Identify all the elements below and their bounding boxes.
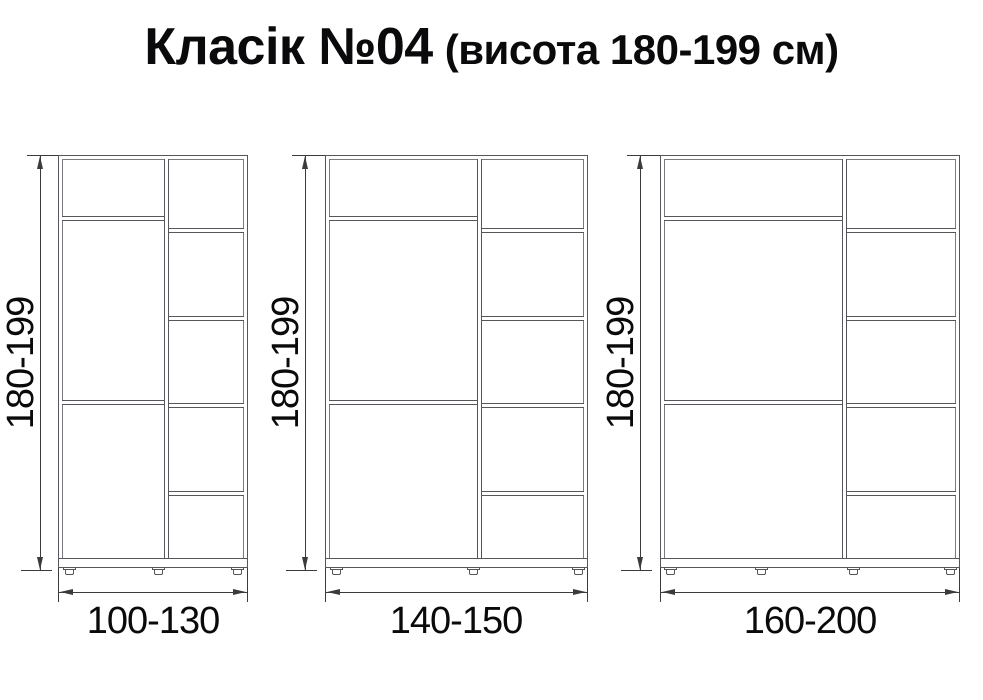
arrowhead-down: [637, 557, 643, 570]
shelf: [169, 228, 244, 233]
arrowhead-down: [37, 557, 43, 570]
shelf: [664, 216, 842, 221]
wardrobe-small: [58, 155, 248, 568]
shelf: [847, 491, 956, 496]
foot: [847, 567, 860, 575]
height-dimension-label: 180-199: [604, 288, 638, 438]
extension-line: [21, 570, 52, 571]
shelf: [482, 403, 584, 408]
shelf: [62, 400, 164, 405]
foot: [572, 567, 585, 575]
shelf: [169, 316, 244, 321]
foot: [944, 567, 957, 575]
extension-line: [621, 570, 652, 571]
vertical-divider: [164, 159, 169, 559]
extension-line: [58, 568, 59, 602]
wardrobe-medium: [325, 155, 588, 568]
arrowhead-down: [302, 557, 308, 570]
foot: [330, 567, 343, 575]
width-dimension-label: 100-130: [33, 600, 273, 643]
arrowhead-left: [662, 589, 675, 595]
height-range-subtitle: (висота 180-199 см): [445, 26, 839, 73]
extension-line: [627, 155, 660, 156]
wardrobe-large: [660, 155, 960, 568]
shelf: [482, 316, 584, 321]
shelf: [482, 228, 584, 233]
width-dimension-line: [59, 592, 247, 593]
arrowhead-left: [327, 589, 340, 595]
vertical-divider: [842, 159, 847, 559]
shelf: [482, 491, 584, 496]
foot: [63, 567, 76, 575]
extension-line: [660, 568, 661, 602]
extension-line: [587, 568, 588, 602]
vertical-divider: [477, 159, 482, 559]
shelf: [329, 400, 477, 405]
shelf: [62, 216, 164, 221]
shelf: [847, 403, 956, 408]
foot: [664, 567, 677, 575]
diagram-canvas: Класік №04(висота 180-199 см) 180-199 10…: [0, 0, 983, 700]
extension-line: [247, 568, 248, 602]
arrowhead-left: [60, 589, 73, 595]
page-title: Класік №04(висота 180-199 см): [0, 18, 983, 78]
shelf: [329, 216, 477, 221]
width-dimension-line: [326, 592, 587, 593]
extension-line: [286, 570, 317, 571]
height-dimension-label: 180-199: [269, 288, 303, 438]
base-panel: [59, 558, 247, 567]
shelf: [664, 400, 842, 405]
base-panel: [661, 558, 959, 567]
extension-line: [959, 568, 960, 602]
extension-line: [325, 568, 326, 602]
arrowhead-up: [37, 156, 43, 169]
shelf: [169, 403, 244, 408]
arrowhead-right: [945, 589, 958, 595]
extension-line: [292, 155, 325, 156]
foot: [231, 567, 244, 575]
shelf: [847, 316, 956, 321]
arrowhead-up: [637, 156, 643, 169]
foot: [467, 567, 480, 575]
base-panel: [326, 558, 587, 567]
width-dimension-label: 160-200: [690, 600, 930, 643]
arrowhead-up: [302, 156, 308, 169]
foot: [755, 567, 768, 575]
arrowhead-right: [573, 589, 586, 595]
shelf: [847, 228, 956, 233]
shelf: [169, 491, 244, 496]
foot: [152, 567, 165, 575]
product-name: Класік №04: [144, 18, 432, 76]
arrowhead-right: [233, 589, 246, 595]
width-dimension-label: 140-150: [336, 600, 576, 643]
width-dimension-line: [661, 592, 959, 593]
height-dimension-label: 180-199: [4, 288, 38, 438]
